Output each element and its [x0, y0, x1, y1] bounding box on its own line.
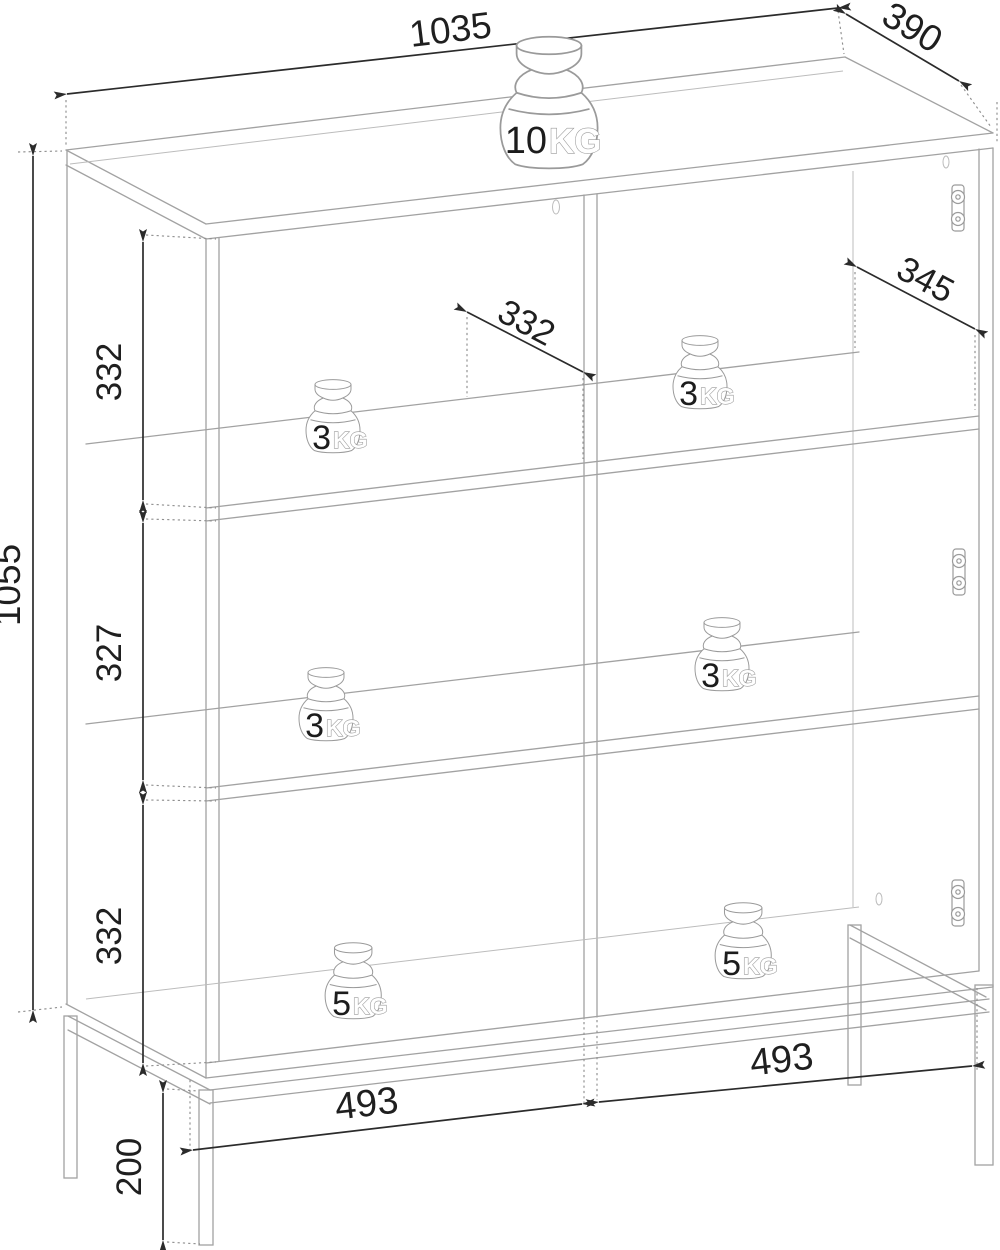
metal-base-frame — [64, 925, 993, 1245]
dim-leg-height: 200 — [110, 1138, 149, 1196]
dim-width-right: 493 — [748, 1036, 816, 1085]
weight-right-bottom-value: 5 — [722, 945, 741, 983]
technical-drawing: 1035 390 1055 332 327 332 200 332 345 49… — [0, 0, 1000, 1250]
hinge-icons — [952, 185, 966, 926]
weight-left-shelf1-value: 3 — [312, 419, 331, 457]
dim-body-height: 1055 — [0, 544, 28, 626]
weight-left-bottom-unit: KG — [353, 993, 388, 1019]
weight-left-bottom-value: 5 — [332, 985, 351, 1023]
weight-left-shelf1-unit: KG — [333, 427, 368, 453]
dim-section-bottom: 332 — [90, 907, 129, 965]
weight-right-bottom-unit: KG — [743, 953, 778, 979]
weight-top-unit: KG — [549, 122, 602, 161]
dim-width-left: 493 — [333, 1080, 401, 1129]
cabinet-dimension-diagram: 1035 390 1055 332 327 332 200 332 345 49… — [0, 0, 1000, 1250]
dim-depth-left: 332 — [491, 292, 561, 354]
weight-left-shelf2-value: 3 — [305, 707, 324, 745]
weight-right-shelf2-value: 3 — [701, 657, 720, 695]
back-left-leg — [64, 1016, 77, 1178]
weight-right-shelf1-unit: KG — [700, 383, 735, 409]
dim-overall-depth: 390 — [875, 0, 949, 61]
panel-holes — [553, 156, 950, 905]
back-right-leg — [848, 925, 861, 1085]
cabinet-shelves — [86, 352, 979, 1063]
dim-section-top: 332 — [90, 343, 129, 401]
cabinet-panels — [66, 148, 993, 1078]
front-left-leg — [199, 1090, 213, 1245]
weight-left-shelf2-unit: KG — [326, 715, 361, 741]
hinge-icon-top — [952, 185, 965, 231]
extension-lines — [18, 11, 997, 1244]
dimension-labels: 1035 390 1055 332 327 332 200 332 345 49… — [0, 0, 960, 1196]
weight-icons — [299, 37, 771, 1019]
weight-top-value: 10 — [505, 120, 547, 162]
hinge-icon-middle — [953, 549, 966, 595]
weight-labels: 10 KG 3 KG 3 KG 3 KG 3 KG 5 KG 5 KG — [305, 120, 777, 1023]
dim-section-middle: 327 — [90, 624, 129, 682]
hinge-icon-bottom — [952, 880, 965, 926]
dim-depth-right: 345 — [890, 249, 960, 311]
weight-right-shelf2-unit: KG — [722, 665, 757, 691]
weight-right-shelf1-value: 3 — [679, 375, 698, 413]
